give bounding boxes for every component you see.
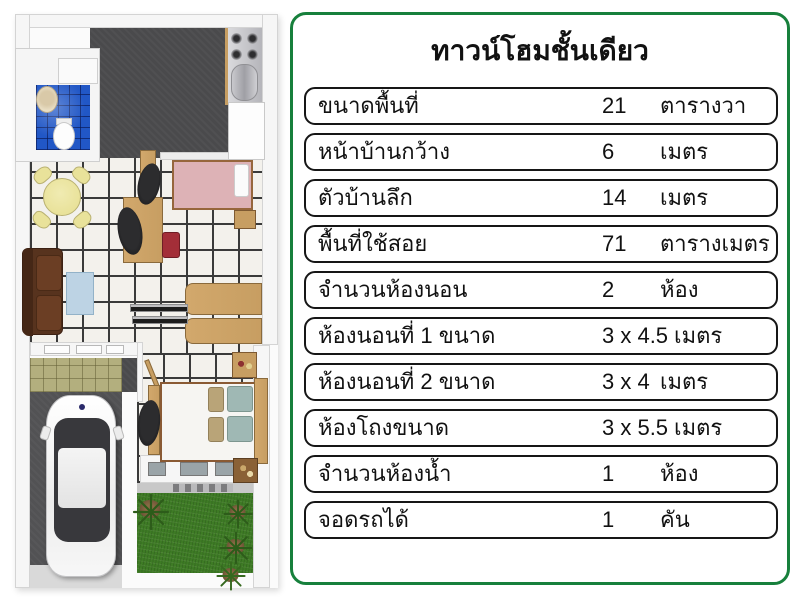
deco-chest [233,458,258,483]
spec-row: ตัวบ้านลึก 14 เมตร [304,179,778,217]
stove-burner-icon [231,33,242,44]
dining-table [43,178,81,216]
spec-row: จำนวนห้องน้ำ 1 ห้อง [304,455,778,493]
sink-icon [36,86,58,113]
nightstand [232,352,257,378]
spec-row: พื้นที่ใช้สอย 71 ตารางเมตร [304,225,778,263]
sofa-cushion [36,255,62,291]
spec-unit: เมตร [660,184,708,212]
spec-table: ขนาดพื้นที่ 21 ตารางวา หน้าบ้านกว้าง 6 เ… [304,87,782,547]
spec-label: จอดรถได้ [318,506,602,534]
wall-top [15,14,278,28]
spec-value: 6 [602,138,654,166]
spec-unit: เมตร [674,414,722,442]
spec-unit: ห้อง [660,276,698,304]
sofa-cushion [36,295,62,331]
spec-label: พื้นที่ใช้สอย [318,230,602,258]
spec-unit: ห้อง [660,460,698,488]
wall-right-upper [262,14,278,345]
red-chair [162,232,180,258]
spec-unit: คัน [660,506,690,534]
sliding-door-rail [173,484,233,492]
sofa [22,248,63,335]
pillow [208,417,224,442]
spec-unit: เมตร [660,138,708,166]
spec-label: ห้องนอนที่ 1 ขนาด [318,322,602,350]
stove-burner-icon [247,33,258,44]
spec-row: ขนาดพื้นที่ 21 ตารางวา [304,87,778,125]
glass-door-pane [180,462,208,476]
kitchen-utility-floor [90,28,228,158]
laundry-tile-floor [30,358,122,392]
stove-burner-icon [231,49,242,60]
dirt-patch [229,505,246,519]
spec-label: จำนวนห้องน้ำ [318,460,602,488]
window-icon [44,345,70,354]
spec-label: หน้าบ้านกว้าง [318,138,602,166]
spec-value: 21 [602,92,654,120]
glass-door-pane [148,462,166,476]
spec-value: 3 x 4.5 [602,322,668,350]
bed-headboard [254,378,268,464]
spec-value: 1 [602,460,654,488]
spec-label: ขนาดพื้นที่ [318,92,602,120]
dirt-patch [226,539,245,554]
dirt-patch [222,568,239,582]
spec-panel: ทาวน์โฮมชั้นเดียว ขนาดพื้นที่ 21 ตารางวา… [290,12,790,585]
kitchen-cabinet [228,102,265,160]
spec-row: จอดรถได้ 1 คัน [304,501,778,539]
pillow [208,387,224,412]
kitchen-sink [231,64,258,101]
window-icon [76,345,102,354]
spec-unit: เมตร [674,322,722,350]
spec-unit: เมตร [660,368,708,396]
spec-row: ห้องโถงขนาด 3 x 5.5 เมตร [304,409,778,447]
sliding-door-track [130,304,188,312]
floorplan-image [10,10,278,590]
panel-title: ทาวน์โฮมชั้นเดียว [293,33,787,69]
nightstand [234,210,256,229]
spec-unit: ตารางวา [660,92,746,120]
stove-burner-icon [247,49,258,60]
spec-value: 71 [602,230,654,258]
spec-label: ตัวบ้านลึก [318,184,602,212]
spec-value: 2 [602,276,654,304]
sofa-back [23,249,33,336]
wall-entry-stub [137,342,143,402]
wardrobe [185,283,262,315]
spec-value: 3 x 5.5 [602,414,668,442]
spec-unit: ตารางเมตร [660,230,770,258]
wardrobe [185,318,262,344]
car-badge [79,404,85,410]
pillow [227,386,253,412]
spec-row: จำนวนห้องนอน 2 ห้อง [304,271,778,309]
car-icon [46,395,116,577]
window-icon [106,345,124,354]
spec-value: 1 [602,506,654,534]
pillow [227,416,253,442]
toilet-icon [53,122,75,150]
spec-label: ห้องโถงขนาด [318,414,602,442]
entry-floor [122,358,137,392]
spec-row: หน้าบ้านกว้าง 6 เมตร [304,133,778,171]
bathroom-counter [58,58,98,84]
spec-row: ห้องนอนที่ 2 ขนาด 3 x 4 เมตร [304,363,778,401]
pillow [234,164,249,197]
spec-label: จำนวนห้องนอน [318,276,602,304]
spec-value: 3 x 4 [602,368,654,396]
spec-value: 14 [602,184,654,212]
spec-row: ห้องนอนที่ 1 ขนาด 3 x 4.5 เมตร [304,317,778,355]
sliding-door-track [132,316,188,324]
spec-label: ห้องนอนที่ 2 ขนาด [318,368,602,396]
dirt-patch [139,500,161,518]
coffee-table [66,272,94,315]
car-roof [58,448,106,508]
